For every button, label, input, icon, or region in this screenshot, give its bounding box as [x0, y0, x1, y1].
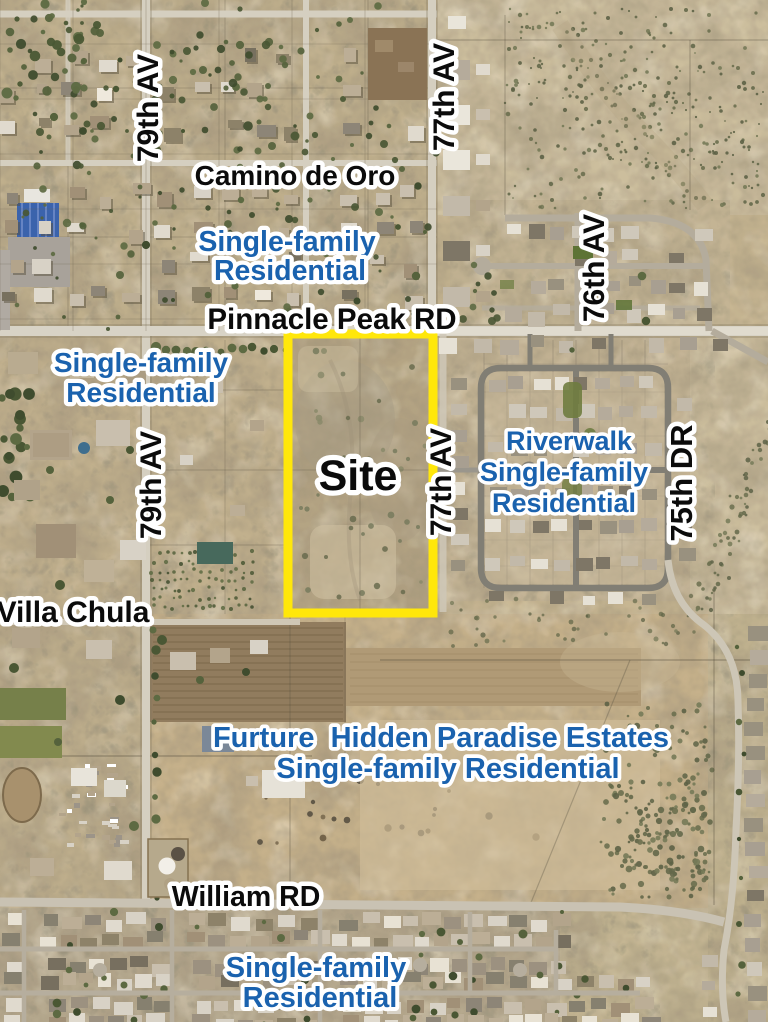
svg-text:Camino de Oro: Camino de Oro: [195, 160, 396, 191]
svg-text:Single-family Residential: Single-family Residential: [276, 753, 619, 785]
svg-text:79th AV: 79th AV: [135, 431, 168, 539]
svg-text:77th AV: 77th AV: [428, 43, 461, 151]
svg-text:Single-family: Single-family: [198, 226, 376, 258]
svg-text:Single-family: Single-family: [480, 457, 648, 487]
svg-text:William RD: William RD: [172, 881, 321, 913]
svg-text:Riverwalk: Riverwalk: [506, 426, 633, 456]
svg-text:Site: Site: [319, 452, 398, 500]
svg-text:Villa Chula: Villa Chula: [0, 596, 150, 629]
svg-text:Furture Hidden Paradise Estat: Furture Hidden Paradise Estates: [213, 722, 669, 754]
svg-text:Pinnacle Peak RD: Pinnacle Peak RD: [207, 303, 456, 336]
svg-text:75th DR: 75th DR: [664, 424, 699, 541]
svg-text:Single-family: Single-family: [54, 347, 229, 378]
svg-text:77th AV: 77th AV: [425, 428, 458, 536]
svg-text:79th AV: 79th AV: [132, 54, 165, 162]
svg-text:76th AV: 76th AV: [578, 214, 611, 322]
svg-text:Single-family: Single-family: [226, 952, 407, 984]
svg-text:Residential: Residential: [243, 982, 398, 1014]
svg-text:Residential: Residential: [214, 255, 366, 287]
svg-text:Residential: Residential: [66, 377, 215, 408]
svg-text:Residential: Residential: [492, 488, 636, 518]
